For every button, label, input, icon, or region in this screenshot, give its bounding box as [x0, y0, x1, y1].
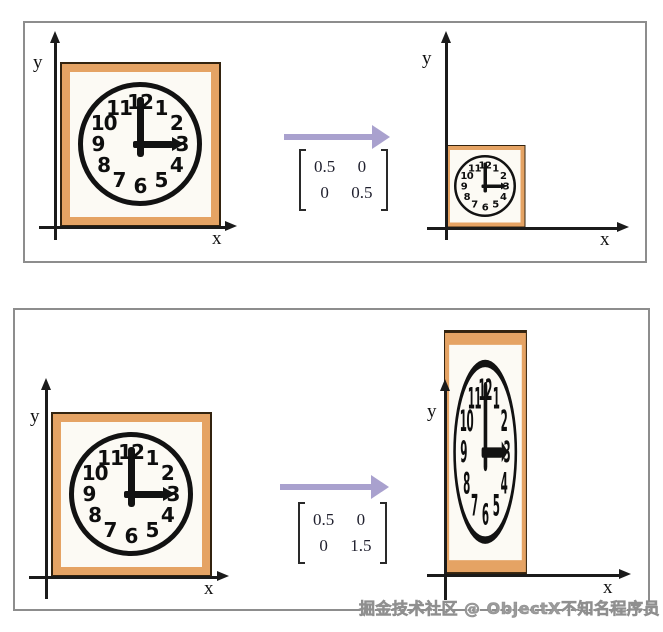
x-axis-arrowhead-icon: [619, 569, 631, 579]
y-axis-line: [45, 387, 48, 599]
x-axis-line: [427, 227, 619, 230]
matrix-cell-11: 0.5: [351, 183, 372, 203]
matrix-cell-00: 0.5: [313, 510, 334, 530]
clock-numeral: 8: [463, 468, 470, 498]
clock-numeral: 3: [176, 134, 189, 154]
clock-numeral: 5: [492, 199, 498, 209]
y-axis-label: y: [422, 49, 432, 68]
x-axis-arrowhead-icon: [617, 222, 629, 232]
x-axis-label: x: [600, 230, 610, 249]
clock-numeral: 1: [155, 98, 168, 118]
clock-numeral: 6: [125, 526, 138, 546]
y-axis-label: y: [30, 407, 40, 426]
clock-numeral: 7: [471, 491, 478, 521]
scale-matrix: 0.5 0 0 1.5: [298, 502, 387, 564]
clock-numeral: 4: [161, 505, 174, 525]
clock-numeral: 4: [500, 192, 506, 202]
y-axis-line: [445, 40, 448, 240]
matrix-right-bracket: [380, 502, 387, 564]
transform-arrow-shaft: [284, 134, 372, 140]
clock-numeral: 2: [501, 406, 508, 436]
panel-uniform-scaling: y x 121234567891011 0.5 0 0 0.5 y x: [23, 21, 647, 263]
clock-numeral: 7: [113, 170, 126, 190]
watermark: 掘金技术社区 @ ObjectX不知名程序员: [359, 595, 660, 619]
clock-numeral: 8: [464, 192, 470, 202]
clock-numeral: 3: [167, 484, 180, 504]
matrix-right-bracket: [381, 149, 388, 211]
clock-numeral: 11: [468, 163, 481, 173]
clock-hour-hand: [133, 141, 173, 148]
y-axis-label: y: [33, 53, 43, 72]
clock-numeral: 2: [170, 113, 183, 133]
clock-numeral: 8: [97, 155, 110, 175]
clock-numeral: 5: [493, 491, 500, 521]
x-axis-label: x: [212, 229, 222, 248]
clock-numeral: 2: [500, 171, 506, 181]
matrix-cell-11: 1.5: [350, 536, 371, 556]
clock-numeral: 6: [482, 499, 489, 529]
clock: 121234567891011: [69, 432, 193, 556]
matrix-cell-10: 0: [319, 536, 328, 556]
matrix-cell-10: 0: [320, 183, 329, 203]
transform-arrow-icon: [371, 475, 389, 499]
clock-numeral: 7: [104, 520, 117, 540]
clock-numeral: 5: [146, 520, 159, 540]
clock-numeral: 11: [468, 383, 481, 413]
y-axis-line: [444, 388, 447, 600]
clock-numeral: 7: [471, 199, 477, 209]
x-axis-arrowhead-icon: [217, 571, 229, 581]
framed-clock-original: 121234567891011: [60, 62, 221, 227]
panel-nonuniform-scaling: y x 121234567891011 0.5 0 0 1.5 12123456…: [13, 308, 650, 611]
clock: 121234567891011: [454, 155, 516, 217]
clock-numeral: 9: [461, 181, 467, 191]
matrix-cells: 0.5 0 0 0.5: [306, 149, 381, 211]
x-axis-line: [427, 574, 621, 577]
framed-clock-stretched: 121234567891011: [444, 330, 527, 575]
clock-numeral: 5: [155, 170, 168, 190]
y-axis-arrowhead-icon: [441, 31, 451, 43]
clock-numeral: 11: [106, 98, 132, 118]
y-axis-arrowhead-icon: [50, 31, 60, 43]
matrix-cells: 0.5 0 0 1.5: [305, 502, 380, 564]
clock-numeral: 1: [146, 448, 159, 468]
clock-numeral: 1: [492, 163, 498, 173]
matrix-left-bracket: [299, 149, 306, 211]
matrix-cell-01: 0: [358, 157, 367, 177]
clock-numeral: 6: [134, 176, 147, 196]
x-axis-line: [39, 226, 227, 229]
clock-numeral: 9: [83, 484, 96, 504]
clock-numeral: 3: [504, 437, 511, 467]
y-axis-arrowhead-icon: [41, 378, 51, 390]
framed-clock-scaled-half: 121234567891011: [445, 145, 526, 228]
clock-numeral: 1: [493, 383, 500, 413]
clock-numeral: 8: [88, 505, 101, 525]
clock-hour-hand: [124, 491, 164, 498]
x-axis-line: [29, 576, 219, 579]
clock-numeral: 3: [503, 181, 509, 191]
y-axis-line: [54, 40, 57, 240]
matrix-cell-01: 0: [357, 510, 366, 530]
clock-numeral: 9: [460, 437, 467, 467]
y-axis-arrowhead-icon: [440, 379, 450, 391]
clock-hour-hand: [482, 447, 503, 457]
clock-numeral: 11: [97, 448, 123, 468]
clock: 121234567891011: [78, 82, 202, 206]
y-axis-label: y: [427, 402, 437, 421]
clock-numeral: 4: [501, 468, 508, 498]
matrix-cell-00: 0.5: [314, 157, 335, 177]
clock-numeral: 2: [161, 463, 174, 483]
clock-hour-hand: [482, 184, 502, 188]
x-axis-label: x: [204, 579, 214, 598]
clock: 121234567891011: [453, 360, 517, 544]
matrix-left-bracket: [298, 502, 305, 564]
x-axis-arrowhead-icon: [225, 221, 237, 231]
clock-numeral: 9: [92, 134, 105, 154]
transform-arrow-icon: [372, 125, 390, 149]
framed-clock-original: 121234567891011: [51, 412, 212, 577]
transform-arrow-shaft: [280, 484, 372, 490]
scale-matrix: 0.5 0 0 0.5: [299, 149, 388, 211]
clock-numeral: 6: [482, 202, 488, 212]
clock-numeral: 4: [170, 155, 183, 175]
